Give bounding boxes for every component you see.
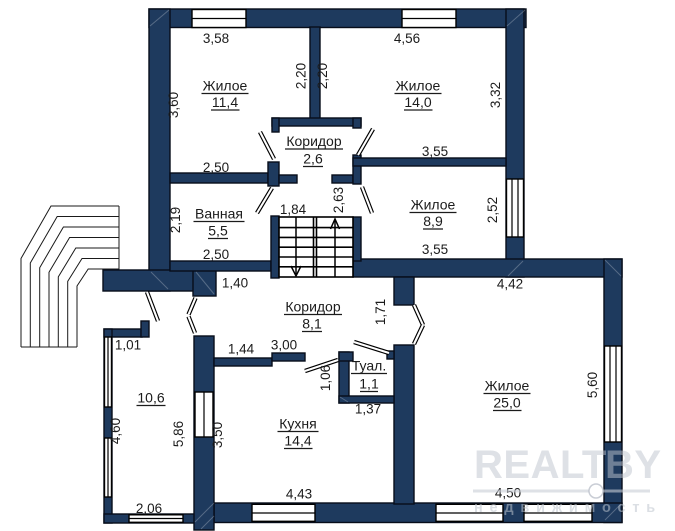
svg-text:3,50: 3,50 [210, 422, 225, 448]
svg-text:BY: BY [605, 443, 662, 487]
svg-text:1,71: 1,71 [373, 299, 388, 325]
svg-text:Коридор: Коридор [285, 299, 341, 315]
svg-text:5,86: 5,86 [171, 421, 186, 447]
svg-text:4,50: 4,50 [495, 486, 521, 501]
svg-text:недвижимость: недвижимость [474, 500, 662, 516]
svg-text:1,37: 1,37 [355, 402, 381, 417]
svg-text:1,40: 1,40 [222, 276, 248, 291]
svg-text:2,19: 2,19 [168, 207, 183, 233]
svg-text:Жилое: Жилое [485, 378, 530, 394]
svg-text:2,6: 2,6 [303, 151, 323, 167]
svg-text:2,52: 2,52 [485, 197, 500, 223]
svg-text:14,0: 14,0 [404, 94, 431, 110]
svg-text:1,06: 1,06 [318, 365, 333, 391]
svg-text:2,20: 2,20 [294, 63, 309, 89]
svg-text:3,55: 3,55 [422, 242, 448, 257]
svg-text:4,43: 4,43 [286, 487, 312, 502]
svg-text:1,44: 1,44 [228, 342, 255, 357]
svg-text:Коридор: Коридор [286, 133, 342, 149]
svg-text:10,6: 10,6 [137, 390, 164, 406]
svg-text:3,32: 3,32 [488, 82, 503, 108]
svg-text:14,4: 14,4 [284, 433, 311, 449]
svg-text:1,1: 1,1 [359, 376, 379, 392]
svg-text:5,60: 5,60 [585, 372, 600, 398]
svg-text:8,1: 8,1 [302, 316, 322, 332]
svg-text:4,60: 4,60 [108, 418, 123, 444]
svg-text:3,00: 3,00 [271, 338, 297, 353]
svg-text:REALT: REALT [474, 443, 607, 487]
svg-text:2,50: 2,50 [203, 247, 229, 262]
svg-text:1,01: 1,01 [115, 338, 141, 353]
svg-text:2,20: 2,20 [315, 63, 330, 89]
svg-text:2,50: 2,50 [203, 160, 229, 175]
svg-text:4,42: 4,42 [497, 277, 523, 292]
svg-text:11,4: 11,4 [212, 94, 238, 110]
svg-text:Жилое: Жилое [411, 197, 456, 213]
svg-text:2,63: 2,63 [331, 187, 346, 213]
svg-text:3,60: 3,60 [166, 92, 181, 118]
svg-text:Кухня: Кухня [279, 416, 316, 432]
svg-text:Туал.: Туал. [352, 358, 386, 374]
svg-text:25,0: 25,0 [493, 395, 520, 411]
svg-text:3,55: 3,55 [422, 144, 448, 159]
svg-text:3,58: 3,58 [203, 31, 229, 46]
svg-text:1,84: 1,84 [280, 202, 307, 217]
svg-text:2,06: 2,06 [136, 501, 162, 516]
svg-text:4,56: 4,56 [394, 31, 420, 46]
svg-text:Жилое: Жилое [203, 78, 248, 94]
svg-text:5,5: 5,5 [208, 223, 228, 239]
svg-text:Жилое: Жилое [396, 78, 441, 94]
svg-text:Ванная: Ванная [195, 206, 243, 222]
svg-text:8,9: 8,9 [423, 213, 443, 229]
